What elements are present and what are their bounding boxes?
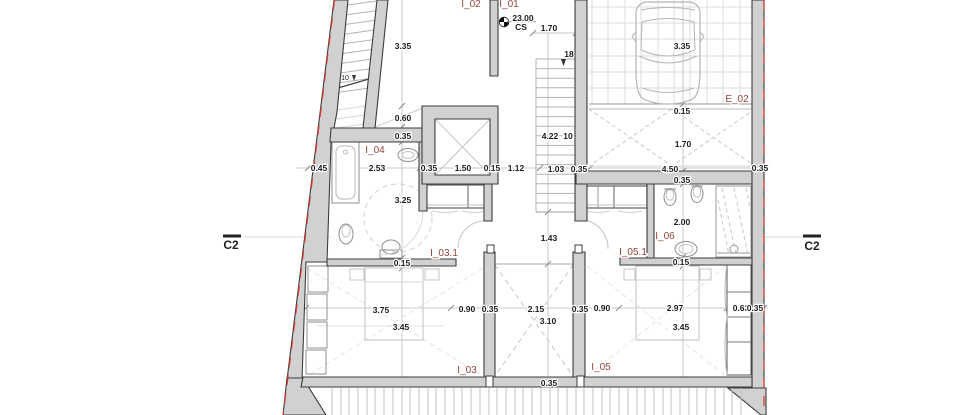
svg-text:I_03.1: I_03.1 (430, 248, 458, 259)
svg-text:0.35: 0.35 (541, 378, 558, 388)
svg-text:I_03: I_03 (457, 365, 477, 376)
svg-text:3.35: 3.35 (395, 41, 412, 51)
svg-text:0.35: 0.35 (571, 164, 588, 174)
svg-text:I_02: I_02 (461, 0, 481, 10)
svg-text:0.15: 0.15 (484, 163, 501, 173)
svg-text:3.25: 3.25 (395, 195, 412, 205)
svg-text:4.22: 4.22 (542, 131, 559, 141)
svg-text:0.35: 0.35 (747, 303, 764, 313)
svg-text:0.35: 0.35 (395, 131, 412, 141)
svg-text:1.12: 1.12 (508, 163, 525, 173)
svg-text:3.35: 3.35 (674, 41, 691, 51)
svg-text:C2: C2 (804, 239, 820, 253)
svg-text:1.70: 1.70 (675, 139, 692, 149)
svg-text:3.45: 3.45 (673, 322, 690, 332)
svg-text:3.10: 3.10 (540, 316, 557, 326)
svg-text:0.35: 0.35 (421, 163, 438, 173)
svg-text:3.75: 3.75 (373, 305, 390, 315)
svg-text:E_02: E_02 (725, 94, 749, 105)
svg-text:4.50: 4.50 (662, 164, 679, 174)
svg-text:0.60: 0.60 (395, 113, 412, 123)
svg-text:I_05.1: I_05.1 (619, 247, 647, 258)
svg-text:0.35: 0.35 (572, 304, 589, 314)
svg-text:1.70: 1.70 (541, 23, 558, 33)
svg-text:0.35: 0.35 (674, 175, 691, 185)
svg-text:10: 10 (341, 75, 349, 82)
svg-text:I_01: I_01 (499, 0, 519, 10)
svg-text:2.53: 2.53 (369, 163, 386, 173)
svg-text:2.15: 2.15 (528, 304, 545, 314)
svg-text:0.35: 0.35 (482, 304, 499, 314)
svg-text:2.00: 2.00 (674, 217, 691, 227)
svg-text:0.90: 0.90 (459, 304, 476, 314)
svg-text:C2: C2 (223, 238, 239, 252)
svg-text:0.15: 0.15 (673, 257, 690, 267)
svg-text:2.97: 2.97 (667, 303, 684, 313)
svg-text:1.03: 1.03 (548, 164, 565, 174)
svg-text:I_06: I_06 (655, 231, 675, 242)
svg-text:18: 18 (564, 49, 574, 59)
svg-text:I_05: I_05 (591, 362, 611, 373)
svg-text:3.45: 3.45 (393, 322, 410, 332)
svg-text:I_04: I_04 (365, 145, 385, 156)
svg-text:0.35: 0.35 (752, 163, 769, 173)
svg-text:0.90: 0.90 (594, 303, 611, 313)
svg-text:1.43: 1.43 (541, 233, 558, 243)
svg-text:0.45: 0.45 (311, 163, 328, 173)
svg-text:CS: CS (515, 22, 527, 32)
svg-text:10: 10 (563, 131, 573, 141)
svg-text:0.15: 0.15 (674, 106, 691, 116)
svg-text:1.50: 1.50 (455, 163, 472, 173)
svg-text:0.15: 0.15 (394, 258, 411, 268)
